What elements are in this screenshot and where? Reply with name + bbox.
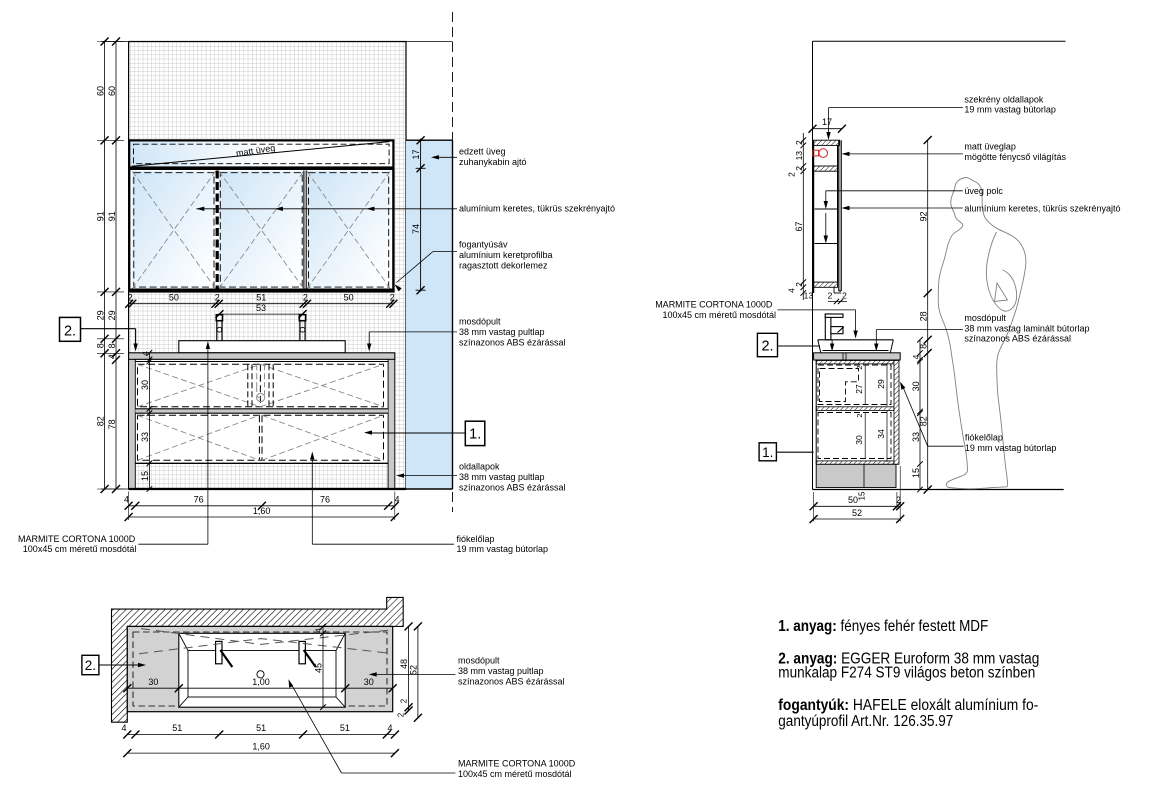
svg-text:60: 60: [107, 86, 117, 96]
svg-text:27: 27: [854, 384, 864, 394]
svg-text:2: 2: [828, 291, 833, 301]
svg-text:gantyúprofil Art.Nr. 126.35.97: gantyúprofil Art.Nr. 126.35.97: [778, 713, 953, 730]
svg-text:28: 28: [918, 311, 928, 321]
svg-text:8: 8: [107, 343, 117, 348]
svg-text:munkalap F274 ST9 világos beto: munkalap F274 ST9 világos beton színben: [778, 665, 1035, 682]
svg-text:67: 67: [794, 221, 804, 231]
svg-text:91: 91: [95, 211, 105, 221]
svg-text:4: 4: [387, 723, 392, 733]
svg-text:4: 4: [140, 351, 150, 356]
svg-text:fogantyúsáv: fogantyúsáv: [459, 240, 508, 250]
svg-text:51: 51: [340, 723, 350, 733]
svg-text:színazonos ABS ézárással: színazonos ABS ézárással: [459, 483, 566, 493]
svg-text:38 mm vastag laminált bútorlap: 38 mm vastag laminált bútorlap: [964, 323, 1089, 333]
svg-text:alumínium keretes, tükrüs szek: alumínium keretes, tükrüs szekrényajtó: [964, 203, 1120, 213]
svg-text:2: 2: [787, 172, 797, 177]
svg-text:2: 2: [896, 495, 901, 505]
svg-text:4: 4: [107, 354, 117, 359]
svg-text:50: 50: [344, 292, 354, 302]
svg-text:2: 2: [400, 698, 409, 703]
svg-text:üveg polc: üveg polc: [964, 186, 1003, 196]
svg-text:2: 2: [855, 413, 864, 417]
svg-text:91: 91: [107, 211, 117, 221]
svg-text:19 mm vastag bútorlap: 19 mm vastag bútorlap: [965, 443, 1057, 453]
svg-text:100x45 cm méretű mosdótál: 100x45 cm méretű mosdótál: [458, 769, 572, 779]
svg-text:17: 17: [411, 149, 421, 159]
svg-text:oldallapok: oldallapok: [459, 462, 500, 472]
svg-text:fiókelőlap: fiókelőlap: [457, 534, 495, 544]
svg-text:45: 45: [314, 663, 324, 673]
svg-text:74: 74: [411, 224, 421, 234]
svg-text:2: 2: [794, 140, 804, 145]
svg-text:mosdópult: mosdópult: [964, 313, 1006, 323]
svg-text:fiókelőlap: fiókelőlap: [965, 433, 1003, 443]
svg-text:51: 51: [172, 723, 182, 733]
svg-text:60: 60: [95, 86, 105, 96]
svg-text:52: 52: [852, 508, 862, 518]
svg-text:2: 2: [390, 292, 395, 302]
svg-text:2: 2: [855, 365, 864, 369]
svg-text:1,00: 1,00: [252, 677, 270, 687]
svg-text:29: 29: [876, 379, 886, 389]
svg-text:76: 76: [320, 495, 330, 505]
svg-text:2: 2: [794, 282, 804, 287]
svg-text:MARMITE CORTONA 1000D: MARMITE CORTONA 1000D: [655, 300, 773, 310]
svg-text:17: 17: [822, 117, 832, 127]
svg-text:29: 29: [95, 310, 105, 320]
svg-text:1.: 1.: [469, 427, 481, 443]
svg-text:15: 15: [858, 491, 867, 500]
svg-text:3: 3: [809, 292, 814, 301]
svg-text:4: 4: [911, 354, 921, 359]
svg-text:33: 33: [140, 432, 150, 442]
svg-text:ragasztott dekorlemez: ragasztott dekorlemez: [459, 261, 548, 271]
svg-text:4: 4: [124, 495, 129, 505]
svg-text:alumínium keretes, tükrüs szek: alumínium keretes, tükrüs szekrényajtó: [459, 204, 615, 214]
svg-text:edzett üveg: edzett üveg: [459, 147, 506, 157]
svg-text:fogantyúk: HAFELE eloxált alu: fogantyúk: HAFELE eloxált alumínium fo-: [778, 697, 1038, 714]
svg-text:100x45 cm méretű mosdótál: 100x45 cm méretű mosdótál: [23, 544, 137, 554]
svg-text:1.: 1.: [762, 445, 773, 460]
svg-text:30: 30: [364, 677, 374, 687]
svg-text:4: 4: [314, 628, 324, 633]
svg-text:2.: 2.: [761, 339, 773, 355]
svg-text:82: 82: [95, 416, 105, 426]
svg-text:4: 4: [121, 723, 126, 733]
svg-text:színazonos ABS ézárással: színazonos ABS ézárással: [964, 334, 1071, 344]
svg-text:színazonos ABS ézárással: színazonos ABS ézárással: [458, 677, 565, 687]
svg-text:38 mm vastag pultlap: 38 mm vastag pultlap: [459, 472, 545, 482]
svg-text:38 mm vastag pultlap: 38 mm vastag pultlap: [459, 327, 545, 337]
svg-text:30: 30: [140, 380, 150, 390]
svg-text:30: 30: [148, 677, 158, 687]
svg-text:mosdópult: mosdópult: [459, 317, 501, 327]
svg-text:51: 51: [256, 292, 266, 302]
svg-text:53: 53: [256, 303, 266, 313]
svg-text:mosdópult: mosdópult: [458, 656, 500, 666]
svg-text:30: 30: [854, 435, 864, 445]
svg-text:78: 78: [107, 419, 117, 429]
svg-text:30: 30: [911, 381, 921, 391]
svg-text:2: 2: [128, 292, 133, 302]
svg-text:15: 15: [911, 468, 921, 478]
svg-text:2.: 2.: [64, 324, 76, 340]
svg-text:13: 13: [794, 151, 804, 161]
svg-text:15: 15: [140, 471, 150, 481]
svg-text:1,60: 1,60: [252, 742, 270, 752]
svg-text:19 mm vastag bútorlap: 19 mm vastag bútorlap: [457, 544, 549, 554]
svg-text:19 mm vastag bútorlap: 19 mm vastag bútorlap: [964, 105, 1056, 115]
svg-text:1,60: 1,60: [253, 506, 271, 516]
svg-text:92: 92: [918, 211, 928, 221]
svg-text:33: 33: [911, 432, 921, 442]
svg-text:50: 50: [848, 495, 858, 505]
svg-text:4: 4: [394, 495, 399, 505]
svg-text:2: 2: [397, 712, 406, 717]
svg-text:zuhanykabin ajtó: zuhanykabin ajtó: [459, 157, 527, 167]
svg-text:100x45 cm méretű mosdótál: 100x45 cm méretű mosdótál: [663, 310, 777, 320]
svg-text:4: 4: [787, 288, 797, 293]
svg-text:34: 34: [876, 429, 886, 439]
svg-text:2: 2: [794, 166, 804, 171]
svg-text:szekrény oldallapok: szekrény oldallapok: [964, 94, 1044, 104]
svg-text:matt üveglap: matt üveglap: [964, 142, 1016, 152]
svg-text:8: 8: [95, 343, 105, 348]
svg-text:mögötte fénycső világítás: mögötte fénycső világítás: [964, 152, 1066, 162]
svg-text:2: 2: [842, 291, 847, 301]
svg-text:50: 50: [169, 292, 179, 302]
svg-text:2: 2: [215, 292, 220, 302]
svg-text:52: 52: [409, 665, 419, 675]
svg-text:színazonos ABS ézárással: színazonos ABS ézárással: [459, 338, 566, 348]
svg-text:1. anyag: fényes fehér festett: 1. anyag: fényes fehér festett MDF: [778, 618, 988, 635]
svg-text:2.: 2.: [85, 658, 96, 673]
svg-text:2: 2: [303, 292, 308, 302]
svg-text:76: 76: [194, 495, 204, 505]
svg-text:alumínium keretprofilba: alumínium keretprofilba: [459, 250, 553, 260]
svg-text:MARMITE CORTONA 1000D: MARMITE CORTONA 1000D: [458, 759, 576, 769]
svg-text:29: 29: [107, 310, 117, 320]
svg-text:MARMITE CORTONA 1000D: MARMITE CORTONA 1000D: [18, 534, 136, 544]
svg-text:51: 51: [256, 723, 266, 733]
svg-text:38 mm vastag pultlap: 38 mm vastag pultlap: [458, 666, 544, 676]
